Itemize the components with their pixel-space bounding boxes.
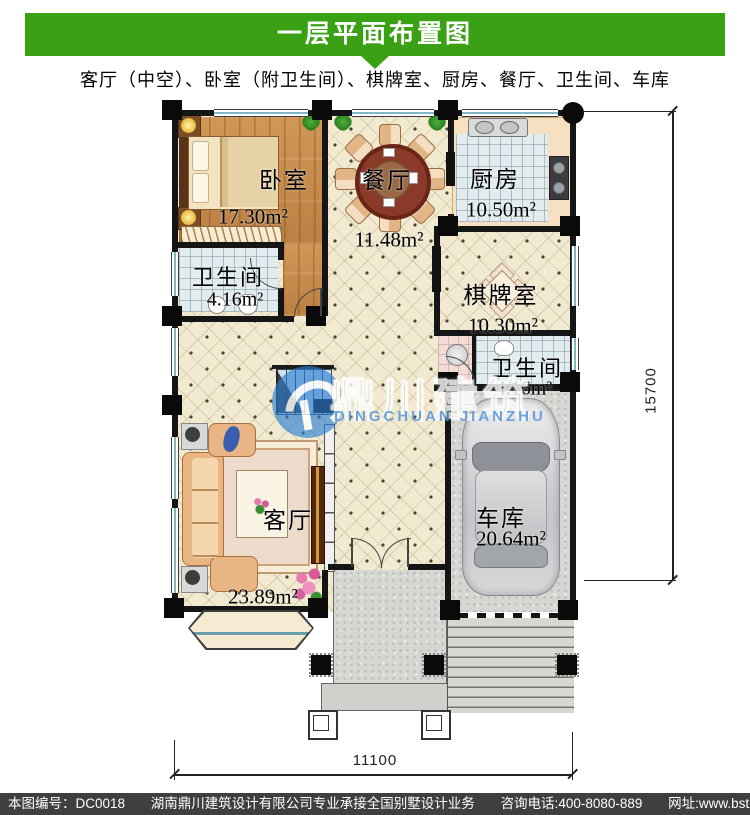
wall-kitchen-bottom [448, 226, 576, 232]
room-area-bedroom: 17.30m² [218, 205, 288, 230]
room-label-kitchen: 厨房 [470, 160, 520, 194]
window-living-left [171, 437, 179, 499]
dim-right-line [672, 111, 674, 581]
footer-phone: 咨询电话:400-8080-889 [501, 796, 643, 811]
room-label-bath1: 卫生间 [192, 260, 264, 292]
column [312, 100, 332, 120]
column [308, 598, 328, 618]
room-area-bath2: 4.16m² [496, 378, 553, 401]
sink-basin [500, 121, 519, 134]
footer-website: 网址:www.bstzcs.com [668, 796, 750, 811]
dim-right-label: 15700 [643, 361, 660, 421]
car-mirror [554, 450, 566, 460]
room-area-bath1: 4.16m² [207, 289, 264, 312]
porch-column [311, 655, 331, 675]
page-title: 一层平面布置图 [25, 13, 725, 56]
driveway-steps [447, 618, 574, 713]
porch-steps [321, 683, 449, 711]
room-label-chess: 棋牌室 [464, 276, 539, 310]
garage-door-dashed [459, 613, 560, 618]
window-living-left2 [171, 508, 179, 593]
lamp [181, 118, 196, 133]
column [438, 216, 458, 236]
stair-wall [314, 399, 334, 413]
entry-door-leaf-left [351, 538, 353, 567]
car [462, 398, 558, 594]
porch-column [424, 655, 444, 675]
column [438, 100, 458, 120]
column-base-inner [313, 715, 329, 731]
side-table-plant [185, 570, 200, 585]
column [560, 216, 580, 236]
room-area-living: 23.89m² [228, 585, 298, 610]
column-base [421, 710, 451, 740]
room-label-living: 客厅 [263, 501, 313, 535]
tv-wall [324, 424, 335, 572]
room-summary: 客厅（中空）、卧室（附卫生间）、棋牌室、厨房、餐厅、卫生间、车库 [0, 66, 750, 92]
sofa-cushions [192, 458, 218, 558]
wall-bath1 [172, 242, 284, 248]
wall-bedroom [322, 110, 328, 316]
footer-code: 本图编号：DC0018 [8, 796, 125, 811]
dining-chair [335, 168, 357, 190]
window-hall-left [171, 328, 179, 376]
window-bedroom-top [214, 109, 308, 117]
window-kitchen-top [462, 109, 558, 117]
footer-bar: 本图编号：DC0018 湖南鼎川建筑设计有限公司专业承接全国别墅设计业务 咨询电… [0, 793, 750, 815]
sink-basin [475, 121, 494, 134]
chess-door-leaf [432, 246, 441, 292]
column [162, 100, 182, 120]
wall-garage-left [445, 384, 451, 618]
porch-column [557, 655, 577, 675]
room-area-garage: 20.64m² [476, 527, 546, 552]
kitchen-door-leaf [446, 152, 455, 186]
wall-entry [408, 564, 448, 570]
plate [383, 148, 395, 157]
dim-right-ext-top [584, 111, 676, 112]
room-area-chess: 10.30m² [468, 314, 538, 339]
floor-plan-page: 一层平面布置图 客厅（中空）、卧室（附卫生间）、棋牌室、厨房、餐厅、卫生间、车库 [0, 0, 750, 815]
window-bath1-left [171, 252, 179, 296]
side-table-plant [185, 427, 200, 442]
room-area-dining: 11.48m² [354, 228, 423, 253]
column [558, 600, 578, 620]
car-mirror [455, 450, 467, 460]
header-bar: 一层平面布置图 [25, 13, 725, 56]
column [164, 598, 184, 618]
wall-bath1-bottom [172, 316, 294, 322]
room-area-kitchen: 10.50m² [466, 198, 536, 223]
room-label-dining: 餐厅 [362, 161, 412, 195]
burner [553, 182, 565, 194]
column [162, 306, 182, 326]
column-base-inner [426, 715, 442, 731]
column [162, 395, 182, 415]
window-bath2-right [571, 338, 579, 370]
room-label-bedroom: 卧室 [259, 161, 309, 195]
column [440, 600, 460, 620]
dim-bottom-label: 11100 [330, 752, 420, 769]
plate [383, 198, 395, 207]
entry-door-leaf-right [407, 538, 409, 567]
dim-right-ext-bottom [584, 580, 676, 581]
column-base [308, 710, 338, 740]
column-round [562, 102, 584, 124]
window-dining-top [352, 109, 434, 117]
pillow [192, 173, 209, 203]
dim-bottom-line [174, 774, 573, 776]
footer-company: 湖南鼎川建筑设计有限公司专业承接全国别墅设计业务 [151, 796, 475, 811]
dining-chair [379, 124, 401, 146]
window-chess-right [571, 246, 579, 306]
bay-window-glass [190, 612, 312, 648]
bed-headboard [179, 137, 188, 207]
pillow [192, 141, 209, 171]
lamp [181, 210, 196, 225]
burner [553, 162, 565, 174]
stair-top-rail [272, 365, 334, 369]
tv-cabinet [311, 466, 325, 564]
bedroom-door-leaf [320, 288, 322, 316]
